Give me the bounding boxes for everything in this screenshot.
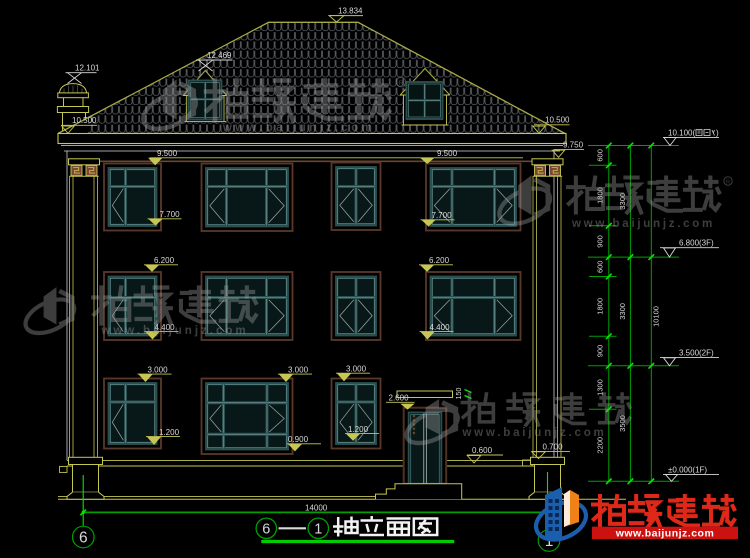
svg-text:2200: 2200: [596, 437, 605, 454]
svg-text:10.100(: 10.100(: [668, 129, 695, 138]
svg-text:0.700: 0.700: [543, 443, 564, 452]
svg-text:www.baijunjz.com: www.baijunjz.com: [461, 427, 606, 439]
svg-text:14000: 14000: [305, 504, 328, 513]
svg-text:600: 600: [596, 261, 605, 274]
svg-text:0.600: 0.600: [472, 446, 493, 455]
svg-text:6.200: 6.200: [154, 256, 175, 265]
svg-text:13.834: 13.834: [338, 6, 363, 15]
svg-text:150: 150: [456, 388, 463, 400]
svg-text:10.500: 10.500: [545, 116, 570, 125]
svg-text:0.900: 0.900: [288, 435, 309, 444]
svg-text:10.500: 10.500: [72, 116, 97, 125]
svg-text:10100: 10100: [651, 306, 660, 327]
svg-text:1800: 1800: [596, 298, 605, 315]
svg-text:www.baijunjz.com: www.baijunjz.com: [615, 527, 715, 539]
svg-text:R: R: [726, 179, 730, 185]
svg-text:www.baijunjz.com: www.baijunjz.com: [100, 325, 248, 337]
svg-text:7.700: 7.700: [160, 210, 181, 219]
svg-text:3.000: 3.000: [288, 366, 309, 375]
svg-text:6: 6: [79, 530, 88, 547]
svg-text:4.400: 4.400: [430, 323, 451, 332]
svg-text:): ): [716, 129, 719, 138]
svg-text:9.500: 9.500: [437, 149, 458, 158]
svg-text:3.000: 3.000: [346, 365, 367, 374]
svg-text:6.800(3F): 6.800(3F): [679, 239, 714, 248]
svg-text:7.700: 7.700: [432, 211, 453, 220]
svg-text:12.469: 12.469: [207, 51, 232, 60]
svg-text:±0.000(1F): ±0.000(1F): [668, 465, 707, 474]
svg-text:1.200: 1.200: [159, 428, 180, 437]
svg-text:3.500(2F): 3.500(2F): [679, 349, 714, 358]
svg-text:3.000: 3.000: [148, 366, 169, 375]
svg-text:9.500: 9.500: [157, 149, 178, 158]
svg-text:9.750: 9.750: [563, 141, 584, 150]
svg-text:12.101: 12.101: [75, 64, 100, 73]
svg-text:3300: 3300: [618, 303, 627, 320]
svg-text:600: 600: [596, 149, 605, 162]
svg-text:900: 900: [596, 345, 605, 358]
svg-text:R: R: [399, 80, 404, 87]
svg-text:1.200: 1.200: [348, 425, 369, 434]
svg-text:1: 1: [314, 522, 322, 538]
svg-text:6: 6: [262, 522, 270, 538]
svg-text:www.baijunjz.com: www.baijunjz.com: [222, 122, 375, 134]
svg-text:900: 900: [596, 235, 605, 248]
svg-text:www.baijunjz.com: www.baijunjz.com: [571, 218, 715, 230]
svg-text:2.600: 2.600: [389, 393, 410, 402]
svg-text:6.200: 6.200: [429, 256, 450, 265]
